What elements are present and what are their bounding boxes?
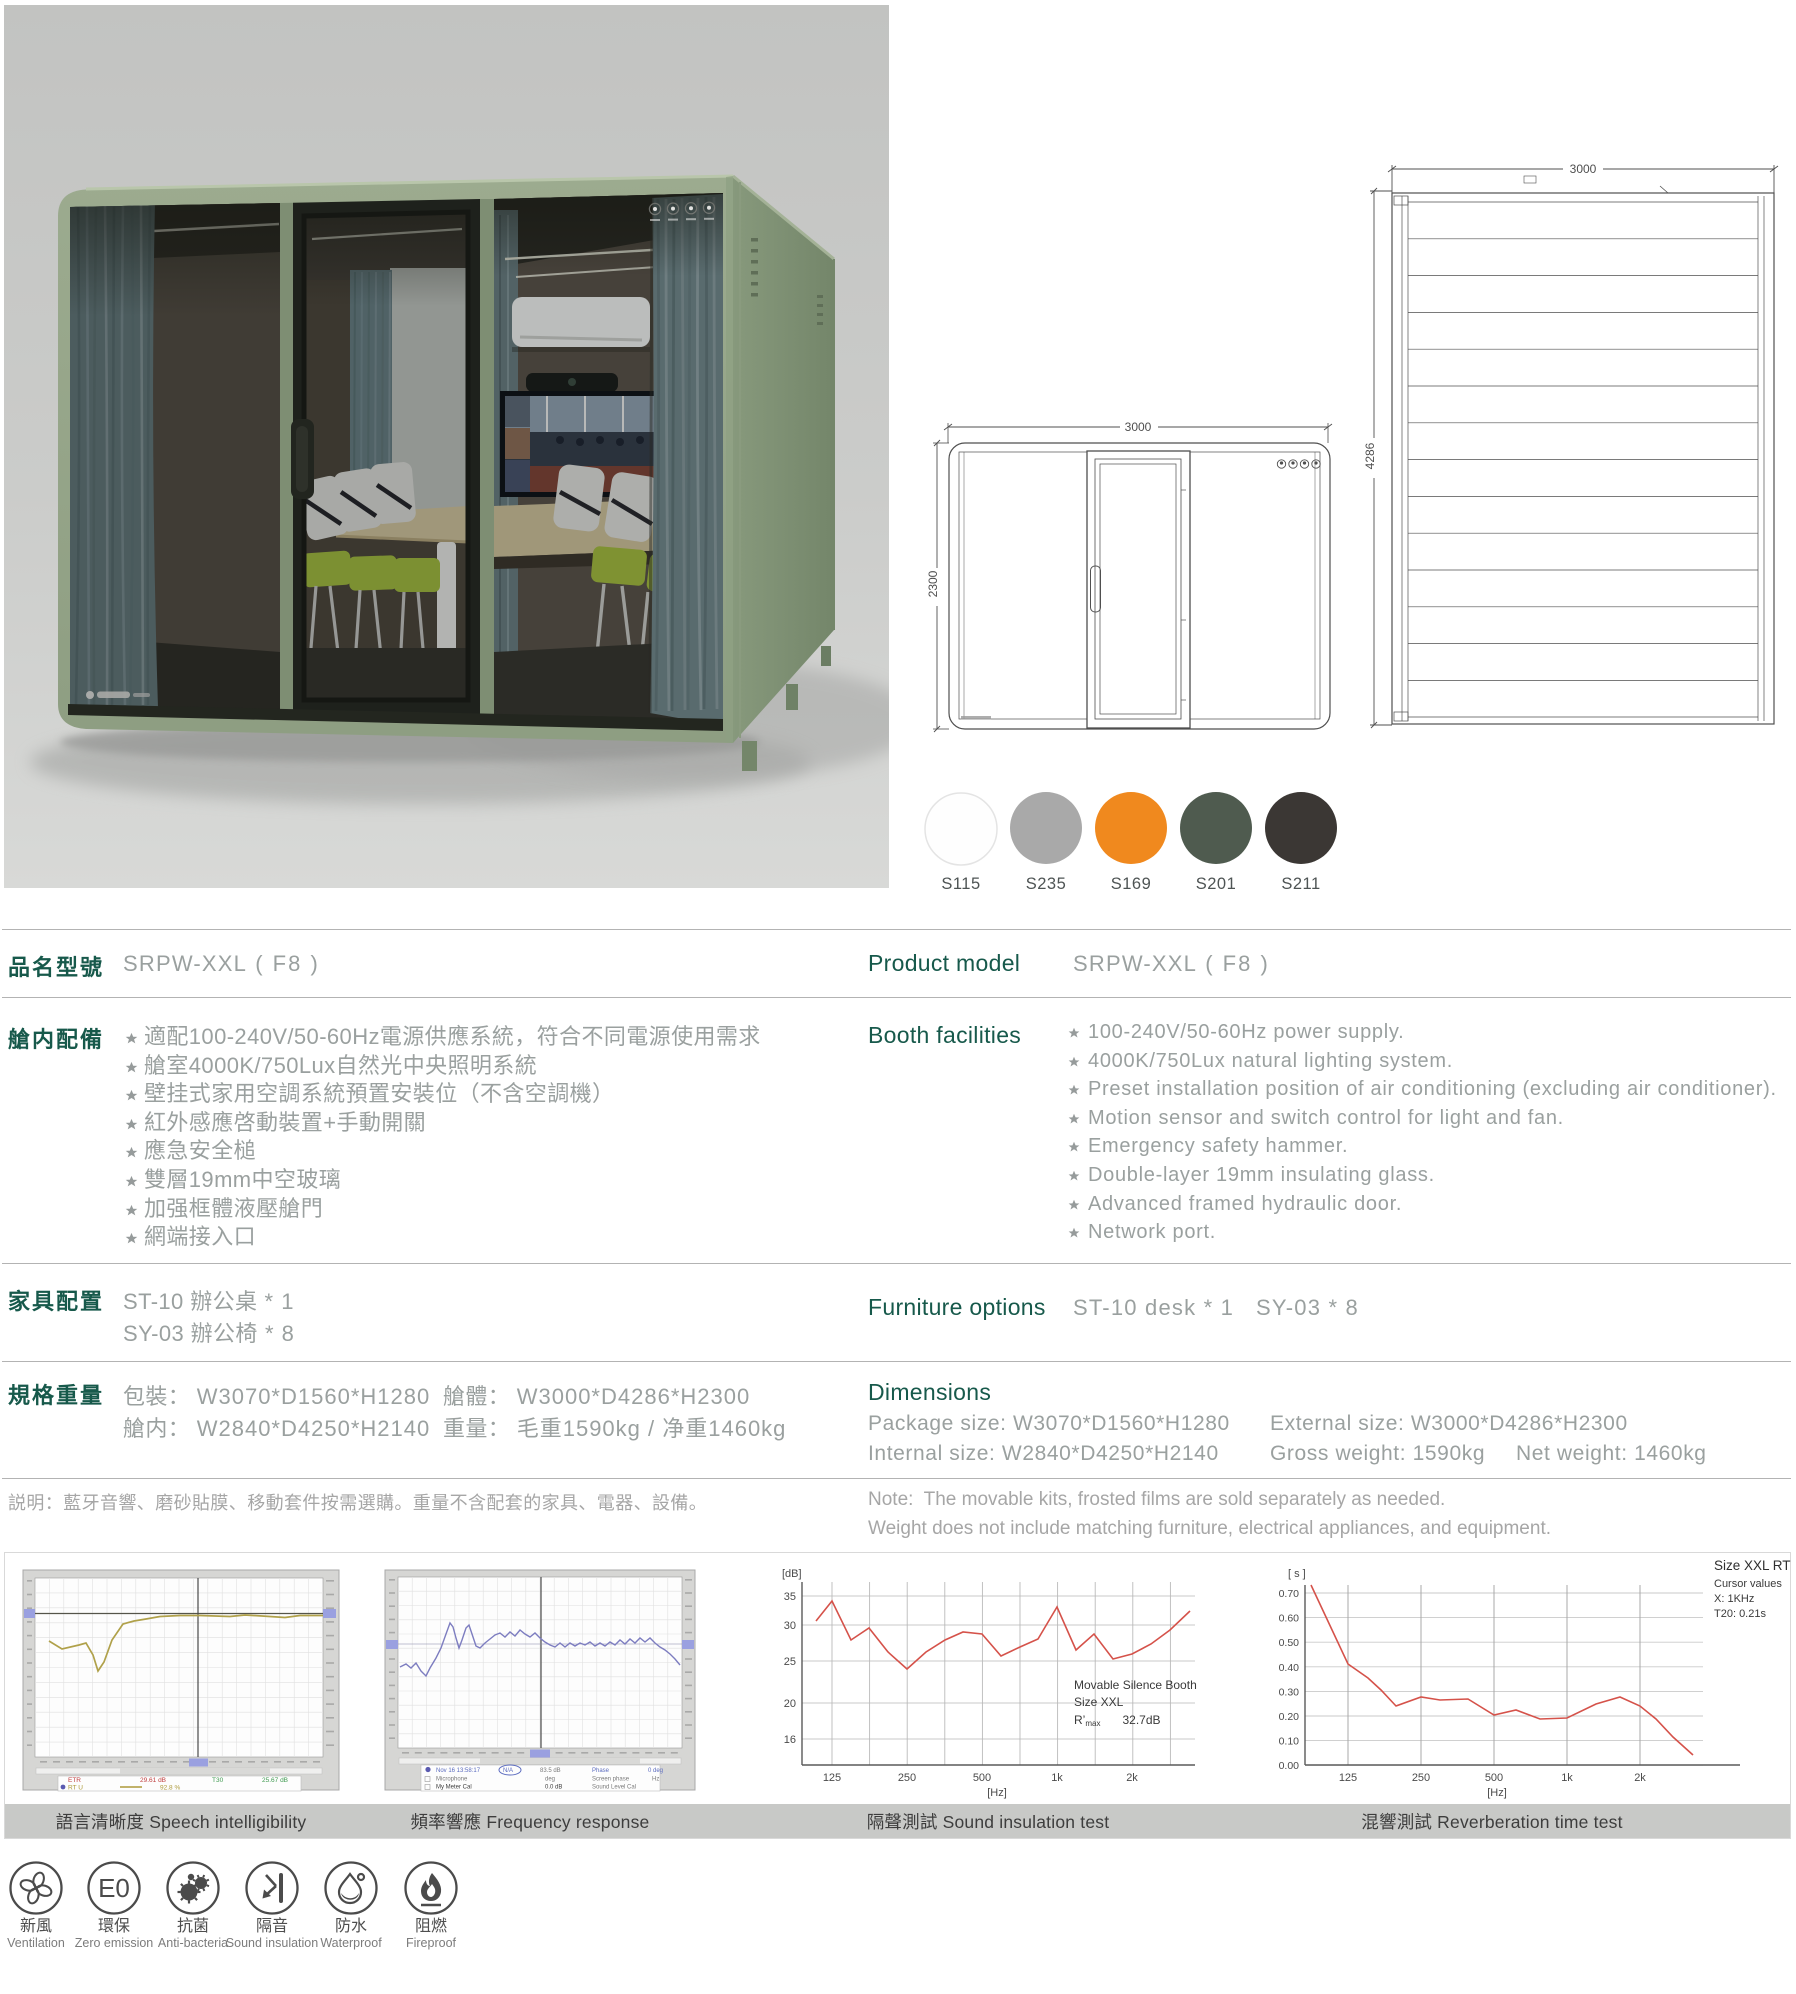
svg-text:0.0 dB: 0.0 dB bbox=[545, 1785, 562, 1791]
svg-text:[dB]: [dB] bbox=[782, 1568, 802, 1580]
svg-text:83.5 dB: 83.5 dB bbox=[540, 1768, 561, 1774]
svg-text:1k: 1k bbox=[1051, 1772, 1063, 1784]
svg-text:Anti-bacteria: Anti-bacteria bbox=[158, 1936, 228, 1950]
svg-text:X: 1KHz: X: 1KHz bbox=[1714, 1593, 1754, 1605]
svg-text:500: 500 bbox=[1485, 1772, 1503, 1784]
svg-text:92.8 %: 92.8 % bbox=[160, 1785, 180, 1792]
svg-text:0.60: 0.60 bbox=[1279, 1613, 1300, 1625]
svg-text:Zero emission: Zero emission bbox=[75, 1936, 154, 1950]
svg-text:混響測試 Reverberation time test: 混響測試 Reverberation time test bbox=[1361, 1812, 1622, 1832]
svg-text:3000: 3000 bbox=[1125, 420, 1152, 434]
svg-text:125: 125 bbox=[823, 1772, 841, 1784]
svg-text:N/A: N/A bbox=[503, 1768, 513, 1774]
svg-text:deg: deg bbox=[545, 1777, 555, 1783]
svg-text:S201: S201 bbox=[1196, 875, 1237, 893]
svg-text:E0: E0 bbox=[98, 1873, 130, 1903]
svg-text:S169: S169 bbox=[1111, 875, 1152, 893]
svg-text:Fireproof: Fireproof bbox=[406, 1936, 457, 1950]
svg-text:Ventilation: Ventilation bbox=[7, 1936, 65, 1950]
svg-text:R’max32.7dB: R’max32.7dB bbox=[1074, 1713, 1161, 1728]
svg-text:3000: 3000 bbox=[1570, 162, 1597, 176]
svg-text:500: 500 bbox=[973, 1772, 991, 1784]
svg-text:RT U: RT U bbox=[68, 1785, 83, 1792]
svg-text:0.10: 0.10 bbox=[1279, 1736, 1300, 1748]
svg-text:[Hz]: [Hz] bbox=[1487, 1787, 1507, 1799]
svg-text:Sound Level Cal: Sound Level Cal bbox=[592, 1785, 636, 1791]
svg-text:25.67 dB: 25.67 dB bbox=[262, 1777, 288, 1784]
svg-text:語言清晰度 Speech intelligibility: 語言清晰度 Speech intelligibility bbox=[56, 1812, 307, 1832]
svg-text:4286: 4286 bbox=[1363, 442, 1377, 469]
svg-text:Waterproof: Waterproof bbox=[320, 1936, 382, 1950]
svg-text:2k: 2k bbox=[1634, 1772, 1646, 1784]
svg-text:Phase: Phase bbox=[592, 1768, 610, 1774]
svg-text:2k: 2k bbox=[1126, 1772, 1138, 1784]
svg-text:Movable Silence Booth: Movable Silence Booth bbox=[1074, 1678, 1197, 1692]
svg-text:0.20: 0.20 bbox=[1279, 1711, 1300, 1723]
svg-text:Nov 16 13:58:17: Nov 16 13:58:17 bbox=[436, 1768, 481, 1774]
svg-text:Hz: Hz bbox=[652, 1777, 659, 1783]
svg-text:250: 250 bbox=[898, 1772, 916, 1784]
svg-text:125: 125 bbox=[1339, 1772, 1357, 1784]
svg-text:隔聲測試 Sound insulation test: 隔聲測試 Sound insulation test bbox=[867, 1812, 1110, 1832]
svg-text:Cursor values: Cursor values bbox=[1714, 1578, 1782, 1590]
svg-text:29.61 dB: 29.61 dB bbox=[140, 1777, 166, 1784]
svg-text:S235: S235 bbox=[1026, 875, 1067, 893]
svg-text:S115: S115 bbox=[941, 875, 980, 893]
svg-text:1k: 1k bbox=[1561, 1772, 1573, 1784]
svg-text:抗菌: 抗菌 bbox=[177, 1917, 209, 1935]
svg-text:[ s ]: [ s ] bbox=[1288, 1568, 1306, 1580]
svg-text:0.30: 0.30 bbox=[1279, 1686, 1300, 1698]
svg-text:Size XXL RT: Size XXL RT bbox=[1714, 1558, 1791, 1573]
svg-text:Microphone: Microphone bbox=[436, 1777, 468, 1783]
svg-text:0.40: 0.40 bbox=[1279, 1662, 1300, 1674]
svg-text:20: 20 bbox=[784, 1698, 796, 1710]
svg-text:頻率響應 Frequency response: 頻率響應 Frequency response bbox=[410, 1812, 649, 1832]
svg-text:T20: 0.21s: T20: 0.21s bbox=[1714, 1608, 1766, 1620]
svg-text:My Meter Cal: My Meter Cal bbox=[436, 1785, 472, 1791]
svg-text:0.00: 0.00 bbox=[1279, 1760, 1300, 1772]
svg-text:新風: 新風 bbox=[20, 1917, 52, 1935]
svg-text:T30: T30 bbox=[212, 1777, 224, 1784]
svg-text:環保: 環保 bbox=[98, 1917, 130, 1935]
svg-text:隔音: 隔音 bbox=[256, 1917, 288, 1935]
svg-text:防水: 防水 bbox=[335, 1917, 367, 1935]
svg-text:ETR: ETR bbox=[68, 1777, 81, 1784]
svg-text:0 deg: 0 deg bbox=[648, 1768, 663, 1774]
svg-text:25: 25 bbox=[784, 1656, 796, 1668]
svg-text:250: 250 bbox=[1412, 1772, 1430, 1784]
svg-text:[Hz]: [Hz] bbox=[987, 1787, 1007, 1799]
svg-text:2300: 2300 bbox=[926, 570, 940, 597]
svg-text:S211: S211 bbox=[1281, 875, 1320, 893]
svg-text:16: 16 bbox=[784, 1734, 796, 1746]
svg-text:Sound insulation: Sound insulation bbox=[226, 1936, 318, 1950]
svg-text:30: 30 bbox=[784, 1620, 796, 1632]
svg-text:Screen phase: Screen phase bbox=[592, 1777, 630, 1783]
svg-text:35: 35 bbox=[784, 1591, 796, 1603]
svg-text:0.70: 0.70 bbox=[1279, 1588, 1300, 1600]
svg-text:Size XXL: Size XXL bbox=[1074, 1695, 1124, 1709]
svg-text:阻燃: 阻燃 bbox=[415, 1917, 447, 1935]
svg-text:0.50: 0.50 bbox=[1279, 1637, 1300, 1649]
